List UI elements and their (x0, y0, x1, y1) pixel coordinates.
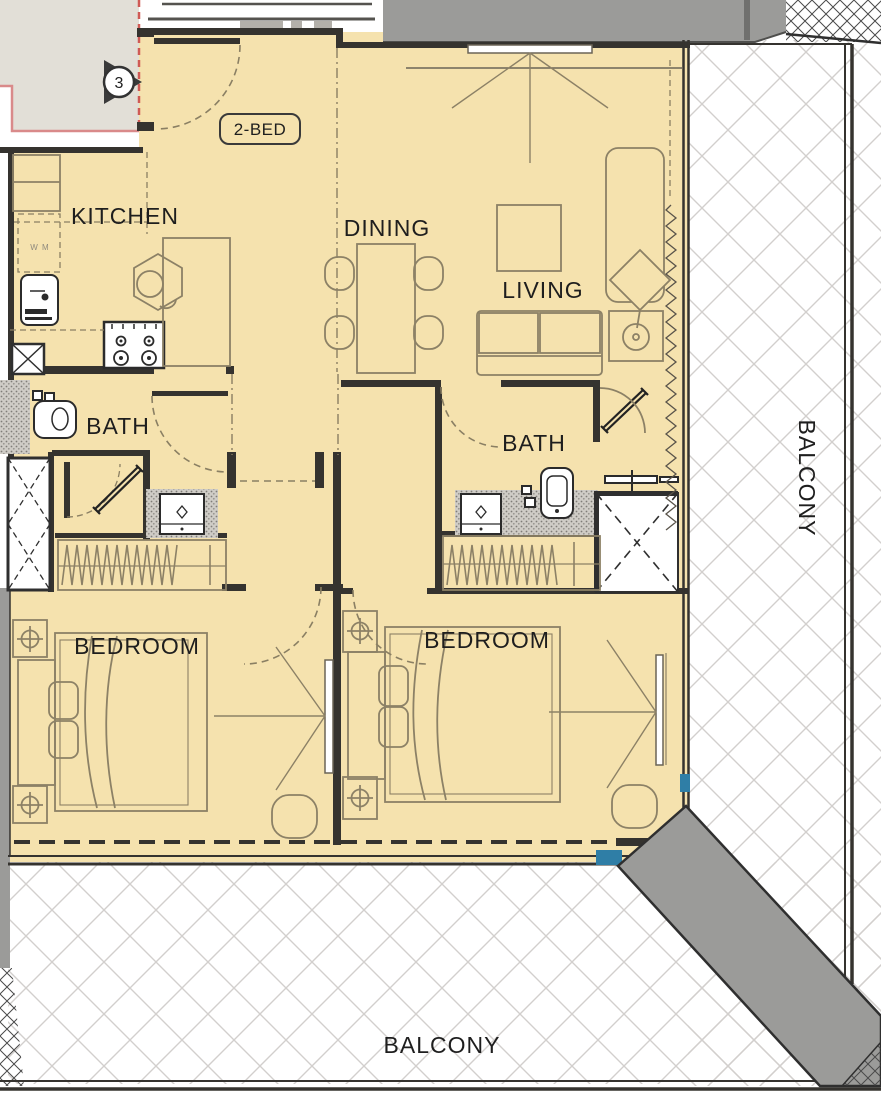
bath2-label: BATH (502, 430, 566, 456)
corridor-lines (148, 4, 375, 28)
floor-plan-drawing: 3 2-BED (0, 0, 881, 1100)
bedroom2-label: BEDROOM (424, 627, 550, 653)
vanity-sink-icon (461, 494, 501, 534)
bath1-label: BATH (86, 413, 150, 439)
dining-table-icon (357, 244, 415, 373)
toilet-icon (541, 468, 573, 518)
unit-type-badge: 2-BED (220, 114, 300, 144)
bedroom1-label: BEDROOM (74, 633, 200, 659)
exterior-wall-strip (0, 588, 10, 968)
vanity-sink-icon (160, 494, 204, 534)
neighbor-unit (0, 0, 139, 131)
duct-x-icon (594, 491, 678, 592)
top-gray-band (383, 0, 881, 43)
marker-number: 3 (115, 75, 124, 92)
duct-x-icon (8, 458, 50, 590)
unit-type-label: 2-BED (234, 120, 287, 139)
floor-plan-canvas: 3 2-BED (0, 0, 881, 1100)
washing-machine-label: W M (30, 243, 49, 252)
balcony-right-label: BALCONY (794, 420, 820, 537)
duct-x-icon (12, 344, 44, 374)
balcony-bottom-label: BALCONY (384, 1032, 501, 1058)
kitchen-label: KITCHEN (71, 203, 179, 229)
living-label: LIVING (502, 277, 583, 303)
dining-label: DINING (344, 215, 431, 241)
kitchen-sink-icon (21, 275, 58, 325)
stove-icon (104, 322, 164, 368)
